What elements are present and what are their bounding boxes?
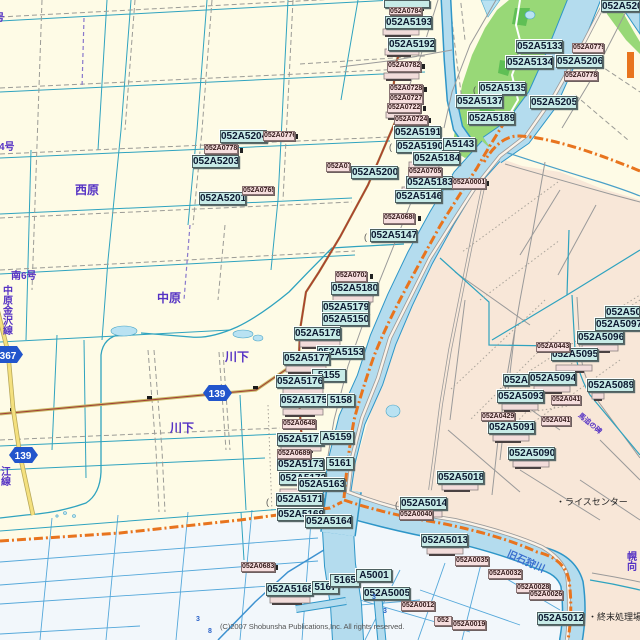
svg-text:139: 139 xyxy=(209,389,226,400)
svg-text:139: 139 xyxy=(15,451,32,462)
svg-text:367: 367 xyxy=(0,351,17,362)
